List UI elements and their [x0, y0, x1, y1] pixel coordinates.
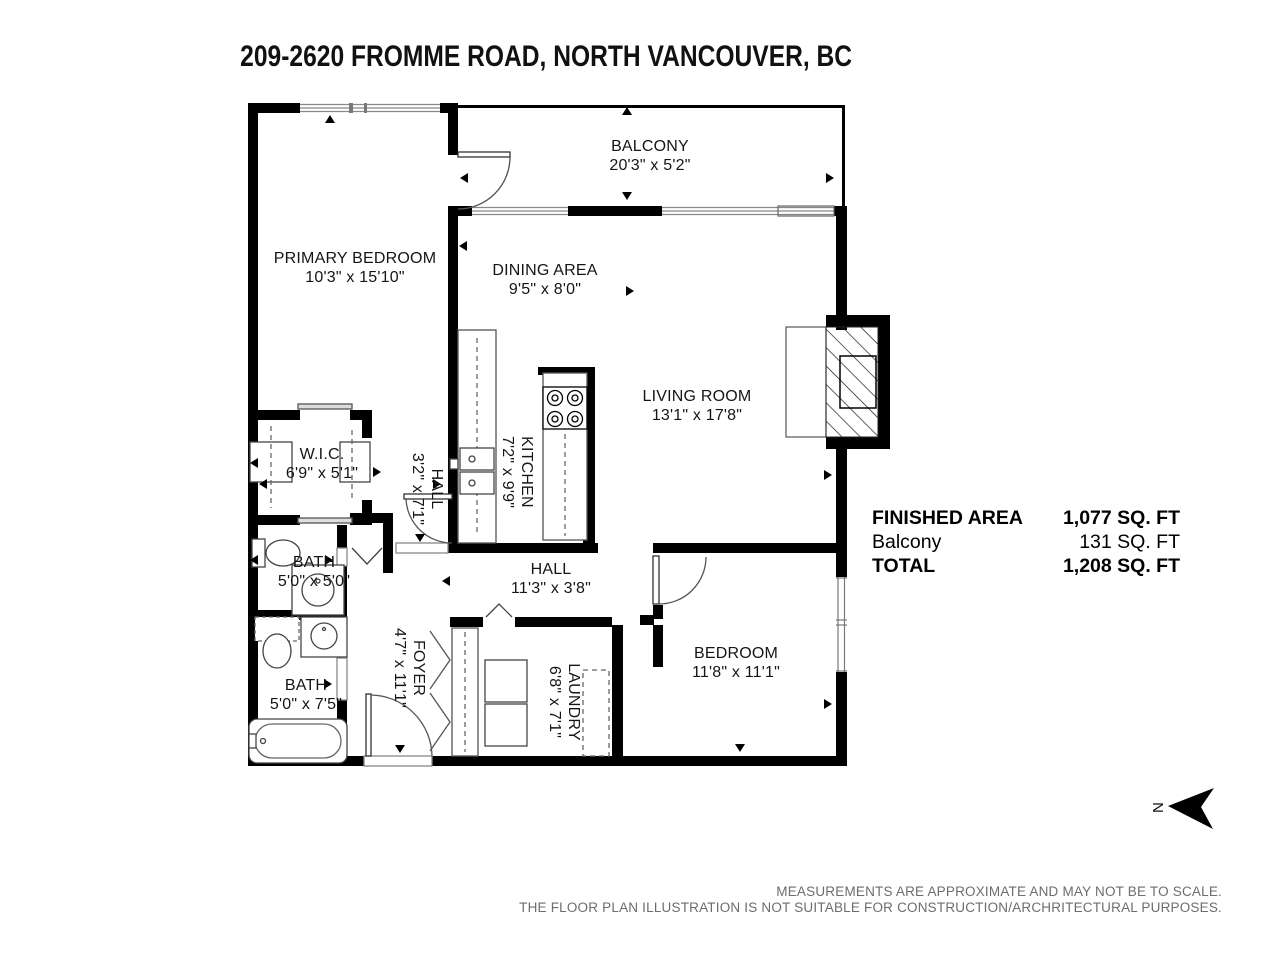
room-label-bedroom: BEDROOM 11'8" x 11'1": [616, 644, 856, 682]
area-value: 131 SQ. FT: [1079, 530, 1180, 554]
room-dims: 11'8" x 11'1": [616, 663, 856, 682]
room-label-wic: W.I.C. 6'9" x 5'1": [202, 445, 442, 483]
room-name: HALL: [427, 414, 446, 564]
room-label-balcony: BALCONY 20'3" x 5'2": [530, 137, 770, 175]
area-value: 1,077 SQ. FT: [1063, 506, 1180, 530]
room-label-laundry: LAUNDRY 6'8" x 7'1": [545, 627, 583, 777]
floor-plan-page: 209-2620 FROMME ROAD, NORTH VANCOUVER, B…: [0, 0, 1280, 960]
room-name: BALCONY: [530, 137, 770, 156]
room-name: LAUNDRY: [564, 627, 583, 777]
room-label-hall-small: HALL 3'2" x 7'1": [408, 414, 446, 564]
room-dims: 9'5" x 8'0": [425, 280, 665, 299]
north-indicator: N: [1146, 786, 1226, 832]
room-name: KITCHEN: [517, 397, 536, 547]
area-label: TOTAL: [872, 554, 935, 578]
room-dims: 11'3" x 3'8": [431, 579, 671, 598]
north-arrow-icon: [1168, 788, 1220, 832]
room-name: DINING AREA: [425, 261, 665, 280]
room-name: W.I.C.: [202, 445, 442, 464]
room-label-bath-1: BATH 5'0" x 5'0": [194, 553, 434, 591]
room-name: BEDROOM: [616, 644, 856, 663]
room-dims: 3'2" x 7'1": [408, 414, 427, 564]
room-dims: 5'0" x 5'0": [194, 572, 434, 591]
area-value: 1,208 SQ. FT: [1063, 554, 1180, 578]
disclaimer-line-1: MEASUREMENTS ARE APPROXIMATE AND MAY NOT…: [519, 884, 1222, 900]
room-label-kitchen: KITCHEN 7'2" x 9'9": [498, 397, 536, 547]
room-label-hall-main: HALL 11'3" x 3'8": [431, 560, 671, 598]
disclaimer-line-2: THE FLOOR PLAN ILLUSTRATION IS NOT SUITA…: [519, 900, 1222, 916]
room-dims: 20'3" x 5'2": [530, 156, 770, 175]
room-dims: 4'7" x 11'1": [390, 593, 409, 743]
room-label-living-room: LIVING ROOM 13'1" x 17'8": [577, 387, 817, 425]
area-summary-table: FINISHED AREA 1,077 SQ. FT Balcony 131 S…: [872, 506, 1180, 578]
area-label: Balcony: [872, 530, 941, 554]
room-dims: 7'2" x 9'9": [498, 397, 517, 547]
room-label-foyer: FOYER 4'7" x 11'1": [390, 593, 428, 743]
room-name: HALL: [431, 560, 671, 579]
room-dims: 6'9" x 5'1": [202, 464, 442, 483]
north-letter: N: [1149, 802, 1166, 813]
room-dims: 13'1" x 17'8": [577, 406, 817, 425]
area-label: FINISHED AREA: [872, 506, 1023, 530]
disclaimer: MEASUREMENTS ARE APPROXIMATE AND MAY NOT…: [519, 884, 1222, 915]
room-name: BATH: [194, 553, 434, 572]
room-dims: 6'8" x 7'1": [545, 627, 564, 777]
area-row-total: TOTAL 1,208 SQ. FT: [872, 554, 1180, 578]
room-name: LIVING ROOM: [577, 387, 817, 406]
room-name: FOYER: [409, 593, 428, 743]
area-row-balcony: Balcony 131 SQ. FT: [872, 530, 1180, 554]
area-row-finished: FINISHED AREA 1,077 SQ. FT: [872, 506, 1180, 530]
room-label-dining-area: DINING AREA 9'5" x 8'0": [425, 261, 665, 299]
